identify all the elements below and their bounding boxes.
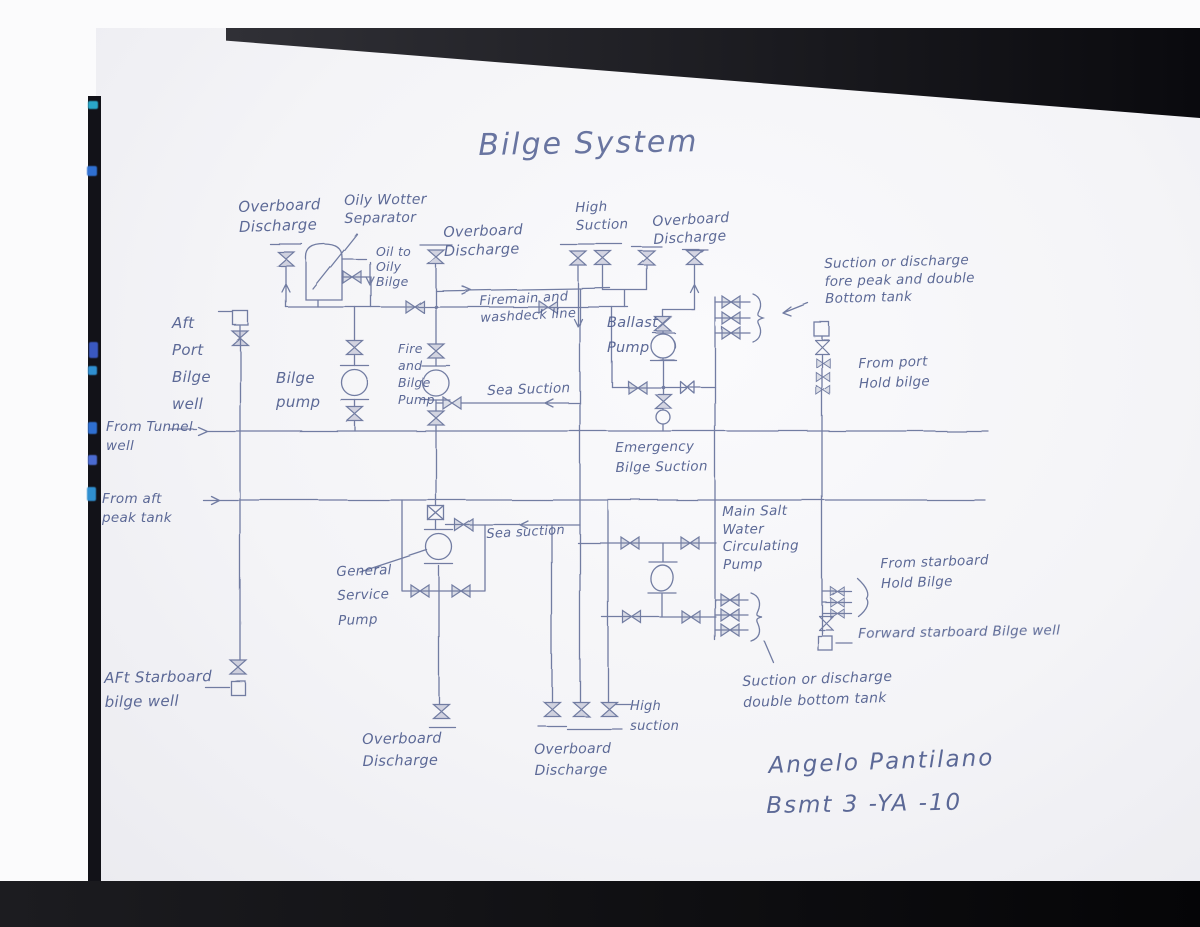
msw-pump-icon bbox=[649, 563, 675, 592]
main-suction-crossover-line bbox=[286, 301, 628, 387]
oily-water-separator bbox=[306, 234, 374, 307]
valve-icon bbox=[721, 624, 739, 636]
label-overboard-discharge-bottom-mid: Overboard Discharge bbox=[534, 739, 612, 782]
photo-of-bilge-system-diagram: Bilge System Overboard Discharge Oily Wo… bbox=[0, 0, 1200, 927]
valve-icon bbox=[623, 611, 641, 623]
valve-icon bbox=[687, 251, 703, 265]
label-overboard-discharge-top-right: Overboard Discharge bbox=[652, 209, 731, 249]
valve-icon bbox=[722, 327, 740, 339]
valve-icon bbox=[721, 609, 739, 621]
valve-icon bbox=[411, 585, 429, 597]
check-valve-icon bbox=[830, 587, 844, 596]
overboard-discharge-1-line bbox=[270, 244, 302, 307]
label-aft-port-bilge-well: Aft Port Bilge well bbox=[172, 310, 211, 418]
tunnel-well-line bbox=[170, 427, 988, 435]
aft-port-to-starboard-column bbox=[205, 311, 248, 695]
forward-starboard-well-icon bbox=[818, 636, 832, 650]
aft-starboard-bilge-well-icon bbox=[231, 681, 245, 695]
label-ballast-pump: Ballast Pump bbox=[607, 311, 658, 360]
fore-peak-well-icon bbox=[814, 322, 829, 336]
label-high-suction-top: High Suction bbox=[575, 198, 629, 235]
bilge-pump-icon bbox=[341, 366, 369, 400]
valve-icon bbox=[428, 411, 444, 425]
emergency-bellmouth-icon bbox=[656, 410, 670, 424]
label-forward-starboard-bilge-well: Forward starboard Bilge well bbox=[858, 622, 1060, 643]
label-general-service-pump: General Service Pump bbox=[336, 558, 394, 633]
valve-icon bbox=[819, 616, 833, 630]
valve-icon bbox=[443, 397, 461, 409]
note-suction-fore-peak: Suction or discharge fore peak and doubl… bbox=[824, 252, 975, 309]
valve-icon bbox=[455, 519, 473, 531]
aft-port-bilge-well-icon bbox=[233, 311, 248, 325]
valve-icon bbox=[278, 252, 294, 266]
label-main-salt-water-pump: Main Salt Water Circulating Pump bbox=[722, 503, 799, 575]
valve-icon bbox=[230, 660, 246, 674]
valve-icon bbox=[621, 537, 639, 549]
label-fire-and-bilge-pump: Fire and Bilge Pump bbox=[398, 341, 435, 409]
check-valve-icon bbox=[816, 386, 830, 395]
general-service-pump-icon bbox=[425, 530, 453, 564]
label-from-aft-peak-tank: From aft peak tank bbox=[102, 490, 172, 528]
valve-icon bbox=[347, 341, 363, 355]
valve-icon bbox=[628, 381, 646, 393]
label-firemain-washdeck: Firemain and washdeck line bbox=[479, 289, 577, 328]
label-from-tunnel-well: From Tunnel well bbox=[106, 418, 193, 456]
brace bbox=[753, 294, 763, 342]
note-pointer bbox=[764, 641, 773, 662]
valve-icon bbox=[681, 537, 699, 549]
note-suction-double-bottom: Suction or discharge double bottom tank bbox=[742, 667, 893, 714]
aft-peak-line bbox=[203, 496, 985, 504]
label-overboard-discharge-bottom-left: Overboard Discharge bbox=[362, 729, 442, 774]
signature-class: Bsmt 3 -YA -10 bbox=[766, 789, 962, 822]
check-valve-icon bbox=[816, 373, 830, 382]
valve-icon bbox=[544, 702, 560, 716]
bus-lines bbox=[170, 427, 988, 504]
label-emergency-bilge-suction: Emergency Bilge Suction bbox=[615, 436, 708, 478]
diagram-title: Bilge System bbox=[478, 122, 699, 165]
label-oily-water-separator: Oily Wotter Separator bbox=[344, 191, 427, 229]
valve-icon bbox=[406, 301, 424, 313]
label-overboard-discharge-top-left: Overboard Discharge bbox=[238, 195, 322, 237]
bilge-pump-column bbox=[341, 307, 369, 431]
valve-icon bbox=[682, 611, 700, 623]
fore-peak-manifold bbox=[715, 294, 808, 640]
label-from-starboard-hold-bilge: From starboard Hold Bilge bbox=[880, 550, 990, 594]
label-sea-suction-upper: Sea Suction bbox=[487, 380, 571, 400]
valve-icon bbox=[815, 340, 829, 354]
valve-icon bbox=[343, 271, 361, 283]
label-high-suction-bottom: High suction bbox=[630, 697, 679, 736]
valve-icon bbox=[595, 251, 611, 265]
valve-icon bbox=[232, 331, 248, 345]
label-from-port-hold-bilge: From port Hold bilge bbox=[858, 352, 930, 395]
valve-icon bbox=[655, 394, 671, 408]
valve-icon bbox=[428, 250, 444, 264]
label-bilge-pump: Bilge pump bbox=[276, 366, 320, 414]
valve-icon bbox=[639, 251, 655, 265]
brace bbox=[857, 578, 867, 616]
note-pointer-arrow bbox=[783, 303, 808, 316]
valve-icon bbox=[570, 251, 586, 265]
valve-icon bbox=[433, 704, 449, 718]
valve-icon bbox=[573, 702, 589, 716]
valve-icon bbox=[721, 594, 739, 606]
label-oil-to-oily-bilge: Oil to Oily Bilge bbox=[376, 244, 411, 289]
check-valve-icon bbox=[816, 359, 830, 368]
check-valve-icon bbox=[830, 598, 844, 607]
fire-and-bilge-pump-column bbox=[420, 245, 580, 500]
valve-icon bbox=[452, 585, 470, 597]
valve-icon bbox=[347, 407, 363, 421]
brace bbox=[751, 593, 762, 641]
valve-icon bbox=[722, 296, 740, 308]
label-overboard-discharge-top-mid: Overboard Discharge bbox=[443, 221, 524, 261]
valve-icon bbox=[722, 312, 740, 324]
label-aft-starboard-bilge-well: AFt Starboard bilge well bbox=[104, 664, 213, 714]
